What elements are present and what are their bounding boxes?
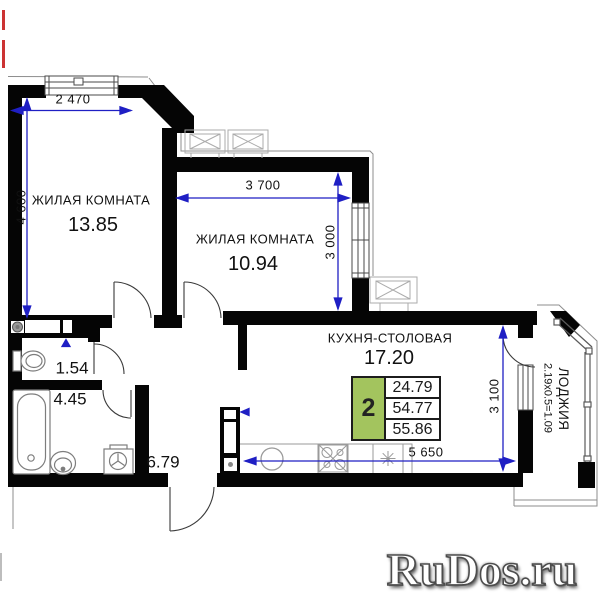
vent-grille-icon-1 [185,130,225,158]
toilet-icon [13,351,45,371]
bathtub-icon [13,390,50,474]
dim-kitchen-width: 5 650 [408,446,443,459]
living1-name: ЖИЛАЯ КОМНАТА [32,194,150,207]
dim-room2-width: 3 700 [245,179,280,192]
dim-room1-width: 2 470 [55,93,90,106]
living2-area: 10.94 [228,254,278,274]
living2-name: ЖИЛАЯ КОМНАТА [196,233,314,246]
loggia-name: ЛОДЖИЯ [556,367,570,430]
kitchen-sink-icon [261,448,283,470]
vent-grille-icon-3 [370,277,417,311]
living1-area: 13.85 [68,215,118,235]
kitchen-area: 17.20 [364,348,414,368]
window-loggia-wall [518,365,533,410]
fridge-icon [381,451,396,466]
dim-room2-height: 3 000 [324,224,337,259]
living-area-value: 24.79 [386,378,439,399]
stove-icon [319,445,347,472]
rooms-count: 2 [353,378,386,439]
walls [8,85,595,488]
hallway-area: 6.79 [146,454,179,471]
dim-room1-height: 4 600 [15,189,28,224]
total-area-value: 55.86 [386,420,439,439]
floor-plan-page: ЖИЛАЯ КОМНАТА 13.85 ЖИЛАЯ КОМНАТА 10.94 … [0,0,600,600]
bathroom-sink-icon [51,452,76,475]
kitchen-name: КУХНЯ-СТОЛОВАЯ [328,332,453,345]
washing-machine-icon [104,445,133,474]
dim-kitchen-height: 3 100 [488,378,501,413]
bathroom-area: 4.45 [53,391,86,408]
floor-plan-drawing [0,0,600,600]
vent-grille-icon-2 [228,130,268,158]
watermark: RuDos.ru [368,543,596,599]
loggia-calc: 2.19x0.5=1.09 [542,363,553,433]
edge-marks [0,10,5,581]
area-without-loggia: 54.77 [386,399,439,420]
wc-area: 1.54 [55,360,88,377]
window-living2 [352,203,369,278]
apartment-summary-box: 2 24.79 54.77 55.86 [351,376,441,441]
